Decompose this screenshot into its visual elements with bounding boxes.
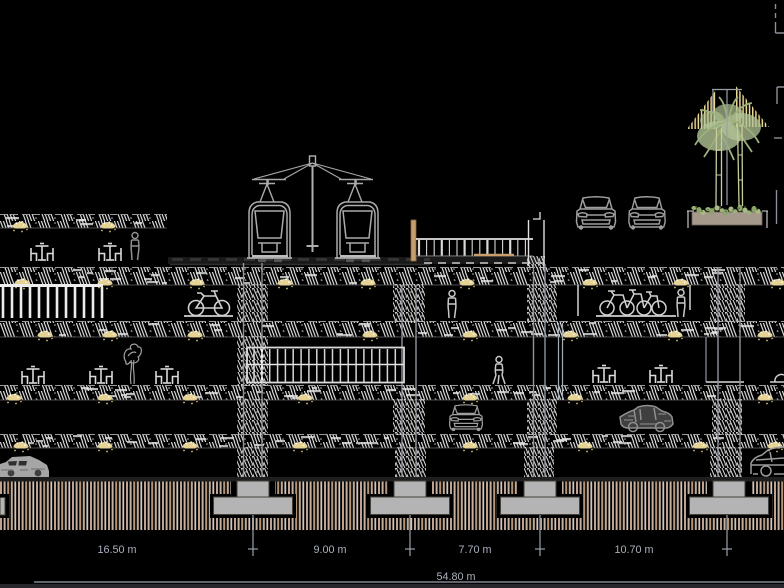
svg-text:10.70 m: 10.70 m [614, 544, 653, 556]
svg-text:7.70 m: 7.70 m [458, 544, 491, 556]
svg-text:16.50 m: 16.50 m [97, 544, 136, 556]
svg-text:54.80 m: 54.80 m [436, 571, 475, 583]
svg-text:9.00 m: 9.00 m [313, 544, 346, 556]
